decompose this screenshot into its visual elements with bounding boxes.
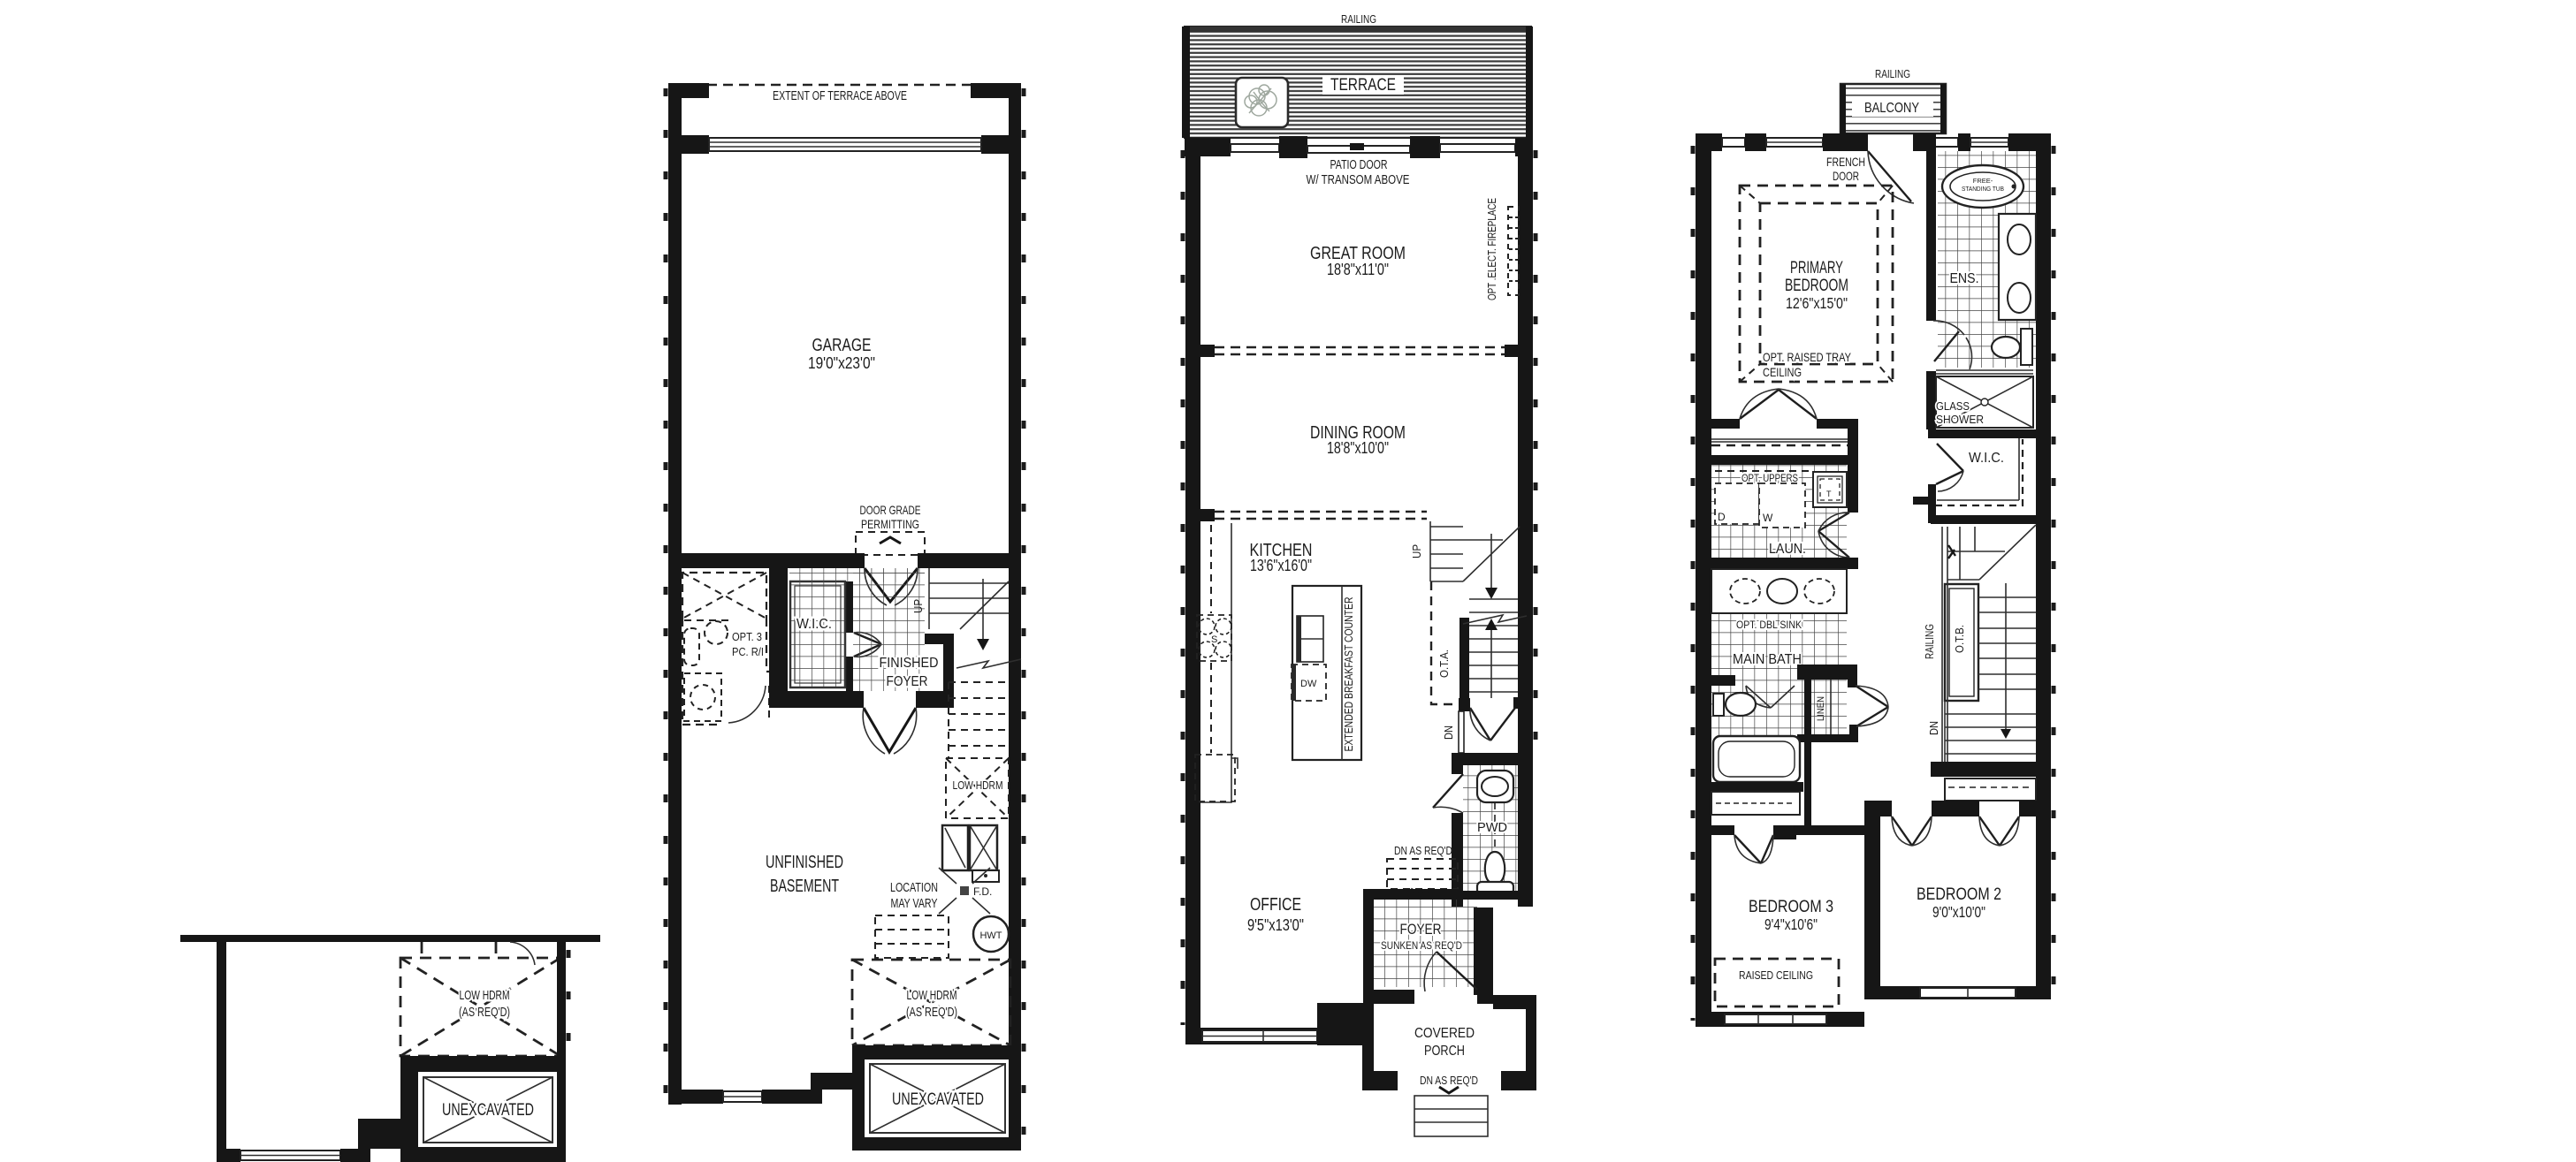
svg-text:ENS.: ENS. — [1950, 271, 1979, 286]
svg-text:PC. R/I: PC. R/I — [732, 645, 764, 658]
svg-text:RAILING: RAILING — [1875, 67, 1910, 80]
svg-text:OFFICE: OFFICE — [1250, 895, 1301, 915]
svg-text:DOOR GRADE: DOOR GRADE — [860, 503, 921, 517]
svg-text:OPT .ELECT. FIREPLACE: OPT .ELECT. FIREPLACE — [1485, 198, 1498, 300]
svg-text:STANDING TUB: STANDING TUB — [1962, 185, 2004, 193]
svg-text:OPT. DBL SINK: OPT. DBL SINK — [1736, 619, 1802, 631]
svg-text:DOOR: DOOR — [1833, 169, 1859, 183]
svg-text:MAY VARY: MAY VARY — [891, 896, 938, 911]
svg-text:PORCH: PORCH — [1424, 1044, 1465, 1059]
svg-text:FINISHED: FINISHED — [880, 656, 939, 671]
svg-text:12'6"x15'0": 12'6"x15'0" — [1786, 294, 1848, 312]
svg-text:O.T.A.: O.T.A. — [1437, 649, 1451, 678]
svg-text:(AS REQ'D): (AS REQ'D) — [906, 1005, 957, 1020]
svg-text:9'4"x10'6": 9'4"x10'6" — [1764, 915, 1818, 933]
svg-text:RAILING: RAILING — [1341, 12, 1376, 26]
svg-text:D: D — [1718, 511, 1726, 523]
svg-text:13'6"x16'0": 13'6"x16'0" — [1250, 557, 1312, 574]
svg-text:UP: UP — [1410, 544, 1423, 558]
svg-text:BEDROOM 3: BEDROOM 3 — [1749, 898, 1833, 916]
svg-text:PWD: PWD — [1477, 820, 1507, 835]
svg-text:OPT. 3: OPT. 3 — [732, 630, 762, 643]
svg-text:BEDROOM 2: BEDROOM 2 — [1917, 885, 2001, 904]
svg-text:PRIMARY: PRIMARY — [1790, 259, 1843, 277]
svg-text:18'8"x11'0": 18'8"x11'0" — [1327, 261, 1389, 278]
svg-text:LAUN.: LAUN. — [1769, 542, 1806, 557]
svg-text:BEDROOM: BEDROOM — [1785, 277, 1848, 295]
svg-text:RAISED CEILING: RAISED CEILING — [1739, 968, 1813, 982]
svg-text:UP: UP — [911, 599, 925, 613]
svg-text:OPT. UPPERS: OPT. UPPERS — [1741, 472, 1798, 484]
svg-text:UNEXCAVATED: UNEXCAVATED — [892, 1090, 984, 1109]
svg-text:UNFINISHED: UNFINISHED — [766, 853, 843, 872]
svg-text:DN AS REQ'D: DN AS REQ'D — [1420, 1074, 1478, 1087]
svg-text:MAIN BATH: MAIN BATH — [1733, 652, 1802, 667]
svg-text:DN AS REQ'D: DN AS REQ'D — [1394, 844, 1452, 857]
svg-text:W.I.C.: W.I.C. — [1969, 451, 2004, 466]
svg-text:FREE-: FREE- — [1973, 177, 1993, 185]
svg-text:COVERED: COVERED — [1414, 1026, 1475, 1041]
svg-text:GLASS: GLASS — [1936, 399, 1970, 413]
svg-text:PATIO DOOR: PATIO DOOR — [1330, 157, 1388, 172]
svg-text:BASEMENT: BASEMENT — [770, 877, 839, 896]
svg-text:FOYER: FOYER — [1400, 921, 1442, 938]
svg-text:LOW HDRM: LOW HDRM — [953, 778, 1003, 792]
svg-text:F.D.: F.D. — [973, 885, 992, 898]
svg-text:19'0"x23'0": 19'0"x23'0" — [808, 354, 875, 372]
svg-text:W: W — [1763, 512, 1773, 524]
svg-text:FRENCH: FRENCH — [1826, 155, 1865, 169]
svg-text:S: S — [1211, 634, 1217, 645]
svg-text:RAILING: RAILING — [1923, 624, 1936, 659]
svg-text:EXTENDED BREAKFAST COUNTER: EXTENDED BREAKFAST COUNTER — [1342, 597, 1355, 752]
svg-text:LOCATION: LOCATION — [890, 880, 938, 895]
svg-text:DN: DN — [1442, 725, 1455, 740]
svg-text:CEILING: CEILING — [1763, 365, 1802, 379]
svg-text:EXTENT OF TERRACE ABOVE: EXTENT OF TERRACE ABOVE — [773, 88, 907, 103]
svg-text:HWT: HWT — [979, 930, 1002, 941]
svg-text:UNEXCAVATED: UNEXCAVATED — [442, 1101, 534, 1120]
svg-text:O.T.B.: O.T.B. — [1953, 625, 1966, 653]
svg-text:FOYER: FOYER — [887, 674, 928, 689]
svg-text:LOW HDRM: LOW HDRM — [460, 988, 510, 1003]
svg-text:SUNKEN AS REQ'D: SUNKEN AS REQ'D — [1381, 939, 1462, 952]
svg-text:OPT. RAISED TRAY: OPT. RAISED TRAY — [1763, 350, 1852, 364]
svg-text:(AS REQ'D): (AS REQ'D) — [459, 1005, 510, 1020]
svg-text:T: T — [1826, 490, 1832, 498]
svg-text:W/ TRANSOM ABOVE: W/ TRANSOM ABOVE — [1307, 172, 1410, 187]
svg-text:9'5"x13'0": 9'5"x13'0" — [1247, 916, 1304, 934]
svg-text:LOW HDRM: LOW HDRM — [907, 988, 957, 1003]
svg-text:W.I.C.: W.I.C. — [796, 617, 832, 632]
svg-text:DN: DN — [1927, 721, 1940, 735]
svg-text:9'0"x10'0": 9'0"x10'0" — [1932, 903, 1985, 921]
svg-text:TERRACE: TERRACE — [1330, 76, 1396, 95]
svg-text:GARAGE: GARAGE — [812, 336, 872, 355]
svg-text:SHOWER: SHOWER — [1936, 413, 1984, 426]
svg-text:PERMITTING: PERMITTING — [861, 517, 919, 531]
svg-text:18'8"x10'0": 18'8"x10'0" — [1327, 439, 1389, 457]
svg-text:DW: DW — [1300, 679, 1317, 689]
svg-text:LINEN: LINEN — [1816, 696, 1826, 721]
svg-text:BALCONY: BALCONY — [1864, 101, 1919, 116]
